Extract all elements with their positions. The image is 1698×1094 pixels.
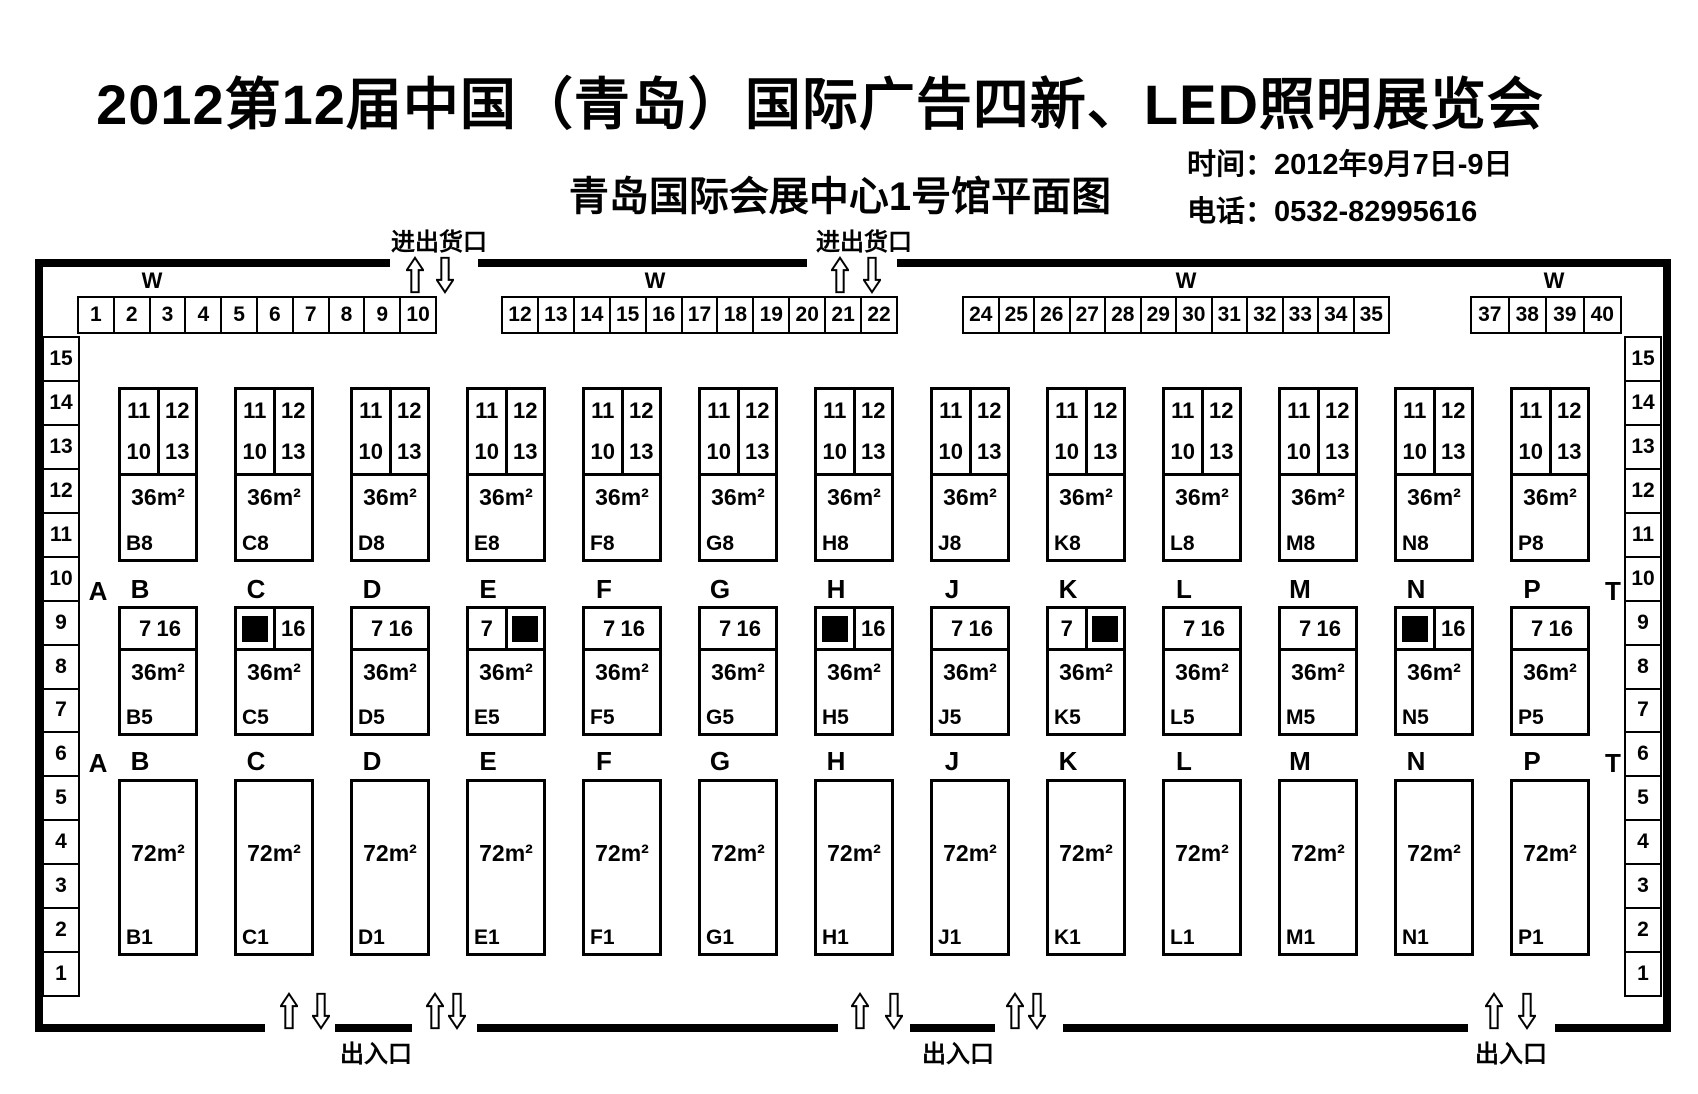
- booth-area: 36m²: [1397, 659, 1471, 686]
- booth-18: 18: [716, 296, 754, 334]
- booth-13: 13: [537, 296, 575, 334]
- row-right-13: 13: [1624, 424, 1662, 470]
- booth-7: 7: [292, 296, 330, 334]
- booth-area: 72m²: [121, 840, 195, 867]
- row-left-15: 15: [42, 336, 80, 382]
- top-cell-right: 1213: [160, 390, 196, 473]
- booth-block-B8: 1110121336m²B8: [118, 387, 198, 562]
- top-booth-group-1: 12345678910: [77, 296, 437, 334]
- mid-cells: 716: [1513, 609, 1587, 648]
- column-letter-B-upper: B: [120, 574, 160, 605]
- booth-block-L8: 1110121336m²L8: [1162, 387, 1242, 562]
- booth-label: K5: [1054, 706, 1081, 730]
- booth-area: 72m²: [585, 840, 659, 867]
- booth-block-F8: 1110121336m²F8: [582, 387, 662, 562]
- booth-label: F1: [590, 926, 615, 950]
- booth-area: 36m²: [121, 484, 195, 511]
- booth-block-P8: 1110121336m²P8: [1510, 387, 1590, 562]
- booth-24: 24: [962, 296, 1000, 334]
- booth-label: F8: [590, 532, 615, 556]
- booth-block-L5: 71636m²L5: [1162, 606, 1242, 736]
- row-left-8: 8: [42, 644, 80, 690]
- row-right-11: 11: [1624, 512, 1662, 558]
- top-cell-right: 1213: [1436, 390, 1472, 473]
- booth-block-K5: 736m²K5: [1046, 606, 1126, 736]
- booth-block-H1: 72m²H1: [814, 779, 894, 956]
- dock-1-down-arrow-icon: [436, 254, 454, 296]
- booth-label: D1: [358, 926, 385, 950]
- exit-4-down-arrow-icon: [1028, 990, 1046, 1032]
- exit-1-down-arrow-icon: [312, 990, 330, 1032]
- booth-block-K1: 72m²K1: [1046, 779, 1126, 956]
- dock-2-down-arrow-icon: [863, 254, 881, 296]
- top-booth-group-3: 242526272829303132333435: [962, 296, 1390, 334]
- booth-block-B5: 71636m²B5: [118, 606, 198, 736]
- booth-block-D1: 72m²D1: [350, 779, 430, 956]
- occupied-booth-marker: [512, 616, 538, 642]
- wall-bottom-segment: [1063, 1024, 1468, 1032]
- booth-label: P5: [1518, 706, 1544, 730]
- booth-block-M8: 1110121336m²M8: [1278, 387, 1358, 562]
- exit-label-1: 出入口: [311, 1034, 441, 1069]
- top-cell-left: 1110: [1049, 390, 1088, 473]
- exit-label-3: 出入口: [1446, 1034, 1576, 1069]
- booth-block-H5: 1636m²H5: [814, 606, 894, 736]
- booth-35: 35: [1353, 296, 1391, 334]
- booth-label: G5: [706, 706, 734, 730]
- booth-area: 36m²: [1165, 659, 1239, 686]
- row-left-14: 14: [42, 380, 80, 426]
- booth-label: J5: [938, 706, 961, 730]
- dock-door-1-label: 进出货口: [374, 222, 504, 257]
- mid-cell-right: 16: [1436, 609, 1472, 648]
- booth-area: 72m²: [1513, 840, 1587, 867]
- top-cell-right: 1213: [972, 390, 1008, 473]
- top-cell-right: 1213: [276, 390, 312, 473]
- hall-subtitle: 青岛国际会展中心1号馆平面图: [500, 164, 1180, 222]
- booth-label: H1: [822, 926, 849, 950]
- booth-block-J8: 1110121336m²J8: [930, 387, 1010, 562]
- wall-bottom-segment: [1555, 1024, 1671, 1032]
- booth-1: 1: [77, 296, 115, 334]
- wall-bottom-segment: [477, 1024, 838, 1032]
- wall-right: [1663, 259, 1671, 1032]
- row-right-9: 9: [1624, 600, 1662, 646]
- column-letter-G-lower: G: [700, 746, 740, 777]
- booth-area: 36m²: [1281, 659, 1355, 686]
- booth-label: L8: [1170, 532, 1195, 556]
- booth-area: 36m²: [237, 659, 311, 686]
- row-right-2: 2: [1624, 907, 1662, 953]
- column-letter-D-upper: D: [352, 574, 392, 605]
- row-right-15: 15: [1624, 336, 1662, 382]
- booth-block-H8: 1110121336m²H8: [814, 387, 894, 562]
- booth-label: D5: [358, 706, 385, 730]
- row-left-12: 12: [42, 468, 80, 514]
- mid-cell-left: [237, 609, 276, 648]
- row-left-13: 13: [42, 424, 80, 470]
- booth-block-J1: 72m²J1: [930, 779, 1010, 956]
- wall-top-segment: [478, 259, 807, 267]
- exit-5-down-arrow-icon: [1518, 990, 1536, 1032]
- booth-block-C1: 72m²C1: [234, 779, 314, 956]
- booth-area: 72m²: [701, 840, 775, 867]
- mid-cells: 716: [353, 609, 427, 648]
- top-cell-right: 1213: [1552, 390, 1588, 473]
- booth-19: 19: [752, 296, 790, 334]
- booth-20: 20: [788, 296, 826, 334]
- event-phone: 电话：0532-82995616: [1187, 189, 1513, 236]
- column-letter-F-lower: F: [584, 746, 624, 777]
- column-letter-H-lower: H: [816, 746, 856, 777]
- booth-label: M1: [1286, 926, 1315, 950]
- booth-label: N8: [1402, 532, 1429, 556]
- top-cell-left: 1110: [1165, 390, 1204, 473]
- booth-25: 25: [998, 296, 1036, 334]
- booth-block-D5: 71636m²D5: [350, 606, 430, 736]
- booth-9: 9: [363, 296, 401, 334]
- row-right-1: 1: [1624, 951, 1662, 997]
- booth-32: 32: [1246, 296, 1284, 334]
- booth-area: 36m²: [933, 659, 1007, 686]
- booth-label: C5: [242, 706, 269, 730]
- booth-27: 27: [1069, 296, 1107, 334]
- mid-cell-right: 16: [276, 609, 312, 648]
- booth-block-N8: 1110121336m²N8: [1394, 387, 1474, 562]
- exit-1-up-arrow-icon: [280, 990, 298, 1032]
- corridor-label-t-lower: T: [1598, 748, 1628, 779]
- booth-5: 5: [220, 296, 258, 334]
- booth-16: 16: [645, 296, 683, 334]
- booth-block-K8: 1110121336m²K8: [1046, 387, 1126, 562]
- booth-area: 36m²: [1513, 659, 1587, 686]
- booth-label: F5: [590, 706, 615, 730]
- corridor-label-t-upper: T: [1598, 576, 1628, 607]
- booth-39: 39: [1545, 296, 1585, 334]
- booth-label: E1: [474, 926, 500, 950]
- top-cell-left: 1110: [1397, 390, 1436, 473]
- top-booth-group-2: 1213141516171819202122: [501, 296, 898, 334]
- booth-label: K8: [1054, 532, 1081, 556]
- booth-30: 30: [1175, 296, 1213, 334]
- row-right-14: 14: [1624, 380, 1662, 426]
- column-letter-P-lower: P: [1512, 746, 1552, 777]
- top-cell-left: 1110: [701, 390, 740, 473]
- column-letter-F-upper: F: [584, 574, 624, 605]
- top-cell-right: 1213: [1320, 390, 1356, 473]
- booth-label: L1: [1170, 926, 1195, 950]
- booth-area: 36m²: [701, 484, 775, 511]
- booth-area: 36m²: [237, 484, 311, 511]
- booth-34: 34: [1317, 296, 1355, 334]
- wall-label-w-1: W: [132, 268, 172, 294]
- top-cell-right: 1213: [392, 390, 428, 473]
- booth-block-G1: 72m²G1: [698, 779, 778, 956]
- mid-cell-right: 16: [856, 609, 892, 648]
- booth-block-P5: 71636m²P5: [1510, 606, 1590, 736]
- mid-cell-left: [817, 609, 856, 648]
- column-letter-H-upper: H: [816, 574, 856, 605]
- booth-area: 36m²: [933, 484, 1007, 511]
- booth-area: 36m²: [1513, 484, 1587, 511]
- booth-label: L5: [1170, 706, 1195, 730]
- booth-block-C8: 1110121336m²C8: [234, 387, 314, 562]
- booth-area: 72m²: [1049, 840, 1123, 867]
- top-cell-right: 1213: [508, 390, 544, 473]
- row-left-6: 6: [42, 731, 80, 777]
- booth-37: 37: [1470, 296, 1510, 334]
- row-left-2: 2: [42, 907, 80, 953]
- wall-label-w-3: W: [1166, 268, 1206, 294]
- booth-area: 36m²: [817, 659, 891, 686]
- booth-block-N5: 1636m²N5: [1394, 606, 1474, 736]
- booth-14: 14: [573, 296, 611, 334]
- column-letter-K-upper: K: [1048, 574, 1088, 605]
- booth-label: N1: [1402, 926, 1429, 950]
- event-time: 时间：2012年9月7日-9日: [1187, 142, 1513, 189]
- booth-29: 29: [1140, 296, 1178, 334]
- booth-area: 72m²: [1397, 840, 1471, 867]
- column-letter-C-upper: C: [236, 574, 276, 605]
- occupied-booth-marker: [822, 616, 848, 642]
- top-cell-right: 1213: [856, 390, 892, 473]
- column-letter-G-upper: G: [700, 574, 740, 605]
- wall-top-segment: [897, 259, 1671, 267]
- column-letter-M-lower: M: [1280, 746, 1320, 777]
- occupied-booth-marker: [1092, 616, 1118, 642]
- row-left-3: 3: [42, 863, 80, 909]
- booth-area: 36m²: [1165, 484, 1239, 511]
- row-index-left: 151413121110987654321: [42, 336, 80, 997]
- booth-area: 36m²: [353, 659, 427, 686]
- column-letter-L-upper: L: [1164, 574, 1204, 605]
- wall-bottom-segment: [910, 1024, 995, 1032]
- booth-label: G1: [706, 926, 734, 950]
- corridor-label-a-upper: A: [83, 576, 113, 607]
- booth-block-E5: 736m²E5: [466, 606, 546, 736]
- row-right-5: 5: [1624, 775, 1662, 821]
- column-letter-C-lower: C: [236, 746, 276, 777]
- booth-block-G8: 1110121336m²G8: [698, 387, 778, 562]
- mid-cells: 716: [585, 609, 659, 648]
- column-letter-P-upper: P: [1512, 574, 1552, 605]
- wall-bottom-segment: [35, 1024, 265, 1032]
- booth-block-M1: 72m²M1: [1278, 779, 1358, 956]
- row-left-10: 10: [42, 556, 80, 602]
- booth-area: 72m²: [469, 840, 543, 867]
- exit-2-down-arrow-icon: [448, 990, 466, 1032]
- column-letter-D-lower: D: [352, 746, 392, 777]
- row-left-9: 9: [42, 600, 80, 646]
- top-cell-left: 1110: [933, 390, 972, 473]
- top-cell-left: 1110: [1281, 390, 1320, 473]
- column-letter-L-lower: L: [1164, 746, 1204, 777]
- booth-label: E5: [474, 706, 500, 730]
- dock-door-2-label: 进出货口: [799, 222, 929, 257]
- column-letter-M-upper: M: [1280, 574, 1320, 605]
- mid-cell-left: [1397, 609, 1436, 648]
- top-cell-right: 1213: [1088, 390, 1124, 473]
- booth-block-D8: 1110121336m²D8: [350, 387, 430, 562]
- exit-label-2: 出入口: [893, 1034, 1023, 1069]
- booth-block-F1: 72m²F1: [582, 779, 662, 956]
- mid-cells: 716: [121, 609, 195, 648]
- row-right-4: 4: [1624, 819, 1662, 865]
- column-letter-J-lower: J: [932, 746, 972, 777]
- mid-cell-right: [1088, 609, 1124, 648]
- booth-area: 72m²: [817, 840, 891, 867]
- top-cell-left: 1110: [1513, 390, 1552, 473]
- booth-label: B8: [126, 532, 153, 556]
- booth-label: N5: [1402, 706, 1429, 730]
- booth-block-F5: 71636m²F5: [582, 606, 662, 736]
- top-cell-right: 1213: [624, 390, 660, 473]
- mid-cells: 716: [1281, 609, 1355, 648]
- booth-area: 36m²: [353, 484, 427, 511]
- wall-label-w-4: W: [1534, 268, 1574, 294]
- booth-area: 36m²: [817, 484, 891, 511]
- booth-label: B1: [126, 926, 153, 950]
- booth-area: 36m²: [469, 659, 543, 686]
- mid-cell-left: 7: [469, 609, 508, 648]
- booth-28: 28: [1104, 296, 1142, 334]
- booth-label: K1: [1054, 926, 1081, 950]
- booth-10: 10: [399, 296, 437, 334]
- column-letter-N-upper: N: [1396, 574, 1436, 605]
- booth-label: G8: [706, 532, 734, 556]
- booth-area: 36m²: [1049, 484, 1123, 511]
- column-letter-E-upper: E: [468, 574, 508, 605]
- booth-label: J1: [938, 926, 961, 950]
- booth-22: 22: [860, 296, 898, 334]
- booth-area: 72m²: [353, 840, 427, 867]
- top-cell-right: 1213: [1204, 390, 1240, 473]
- mid-cell-left: 7: [1049, 609, 1088, 648]
- booth-block-E8: 1110121336m²E8: [466, 387, 546, 562]
- booth-label: C8: [242, 532, 269, 556]
- mid-cell-right: [508, 609, 544, 648]
- top-cell-left: 1110: [121, 390, 160, 473]
- booth-block-J5: 71636m²J5: [930, 606, 1010, 736]
- row-right-8: 8: [1624, 644, 1662, 690]
- booth-block-N1: 72m²N1: [1394, 779, 1474, 956]
- booth-label: P8: [1518, 532, 1544, 556]
- top-cell-left: 1110: [353, 390, 392, 473]
- booth-4: 4: [184, 296, 222, 334]
- booth-label: E8: [474, 532, 500, 556]
- column-letter-B-lower: B: [120, 746, 160, 777]
- booth-label: P1: [1518, 926, 1544, 950]
- exit-3-down-arrow-icon: [885, 990, 903, 1032]
- mid-cells: 716: [701, 609, 775, 648]
- booth-label: H5: [822, 706, 849, 730]
- row-right-10: 10: [1624, 556, 1662, 602]
- booth-15: 15: [609, 296, 647, 334]
- column-letter-K-lower: K: [1048, 746, 1088, 777]
- booth-33: 33: [1282, 296, 1320, 334]
- dock-2-up-arrow-icon: [831, 254, 849, 296]
- booth-2: 2: [113, 296, 151, 334]
- booth-area: 72m²: [1281, 840, 1355, 867]
- occupied-booth-marker: [1402, 616, 1428, 642]
- event-info: 时间：2012年9月7日-9日 电话：0532-82995616: [1187, 142, 1513, 236]
- booth-area: 72m²: [1165, 840, 1239, 867]
- row-right-3: 3: [1624, 863, 1662, 909]
- column-letter-N-lower: N: [1396, 746, 1436, 777]
- booth-block-E1: 72m²E1: [466, 779, 546, 956]
- booth-area: 36m²: [121, 659, 195, 686]
- dock-1-up-arrow-icon: [406, 254, 424, 296]
- booth-label: C1: [242, 926, 269, 950]
- booth-12: 12: [501, 296, 539, 334]
- top-cell-left: 1110: [237, 390, 276, 473]
- booth-40: 40: [1583, 296, 1623, 334]
- row-left-7: 7: [42, 688, 80, 734]
- booth-17: 17: [681, 296, 719, 334]
- floorplan-page: 2012第12届中国（青岛）国际广告四新、LED照明展览会 青岛国际会展中心1号…: [0, 0, 1698, 1094]
- row-left-11: 11: [42, 512, 80, 558]
- booth-area: 36m²: [585, 659, 659, 686]
- row-index-right: 151413121110987654321: [1624, 336, 1662, 997]
- booth-area: 36m²: [701, 659, 775, 686]
- booth-area: 36m²: [1049, 659, 1123, 686]
- booth-31: 31: [1211, 296, 1249, 334]
- wall-top-segment: [35, 259, 390, 267]
- booth-6: 6: [256, 296, 294, 334]
- row-left-4: 4: [42, 819, 80, 865]
- booth-area: 72m²: [237, 840, 311, 867]
- booth-area: 36m²: [585, 484, 659, 511]
- booth-label: M5: [1286, 706, 1315, 730]
- booth-block-P1: 72m²P1: [1510, 779, 1590, 956]
- booth-block-C5: 1636m²C5: [234, 606, 314, 736]
- booth-38: 38: [1508, 296, 1548, 334]
- booth-3: 3: [149, 296, 187, 334]
- top-cell-left: 1110: [585, 390, 624, 473]
- row-left-1: 1: [42, 951, 80, 997]
- booth-label: J8: [938, 532, 961, 556]
- exit-5-up-arrow-icon: [1485, 990, 1503, 1032]
- booth-area: 72m²: [933, 840, 1007, 867]
- booth-label: H8: [822, 532, 849, 556]
- booth-block-G5: 71636m²G5: [698, 606, 778, 736]
- corridor-label-a-lower: A: [83, 748, 113, 779]
- top-booth-group-4: 37383940: [1470, 296, 1622, 334]
- page-title: 2012第12届中国（青岛）国际广告四新、LED照明展览会: [0, 60, 1640, 141]
- exit-2-up-arrow-icon: [426, 990, 444, 1032]
- occupied-booth-marker: [242, 616, 268, 642]
- exit-4-up-arrow-icon: [1006, 990, 1024, 1032]
- top-cell-left: 1110: [469, 390, 508, 473]
- booth-26: 26: [1033, 296, 1071, 334]
- row-right-12: 12: [1624, 468, 1662, 514]
- booth-area: 36m²: [469, 484, 543, 511]
- booth-block-B1: 72m²B1: [118, 779, 198, 956]
- column-letter-J-upper: J: [932, 574, 972, 605]
- booth-8: 8: [328, 296, 366, 334]
- booth-area: 36m²: [1397, 484, 1471, 511]
- booth-21: 21: [824, 296, 862, 334]
- mid-cells: 716: [1165, 609, 1239, 648]
- booth-block-L1: 72m²L1: [1162, 779, 1242, 956]
- column-letter-E-lower: E: [468, 746, 508, 777]
- top-cell-right: 1213: [740, 390, 776, 473]
- row-right-6: 6: [1624, 731, 1662, 777]
- booth-area: 36m²: [1281, 484, 1355, 511]
- wall-label-w-2: W: [635, 268, 675, 294]
- exit-3-up-arrow-icon: [851, 990, 869, 1032]
- booth-label: M8: [1286, 532, 1315, 556]
